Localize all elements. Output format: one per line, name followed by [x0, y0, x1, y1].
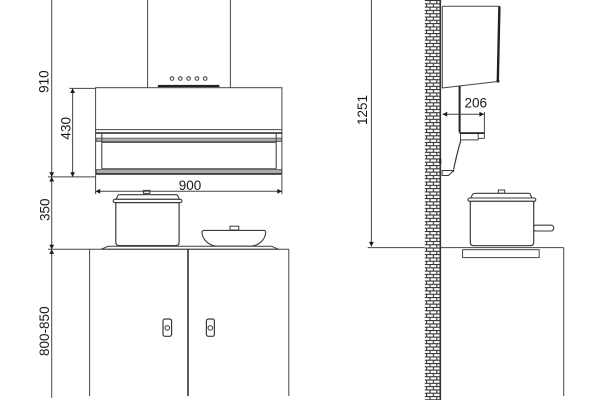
- svg-text:800-850: 800-850: [37, 306, 52, 356]
- svg-text:910: 910: [37, 70, 52, 93]
- svg-text:430: 430: [59, 117, 74, 140]
- svg-text:350: 350: [37, 198, 52, 221]
- svg-text:206: 206: [465, 96, 488, 111]
- svg-text:900: 900: [179, 178, 202, 193]
- svg-text:1251: 1251: [355, 95, 370, 125]
